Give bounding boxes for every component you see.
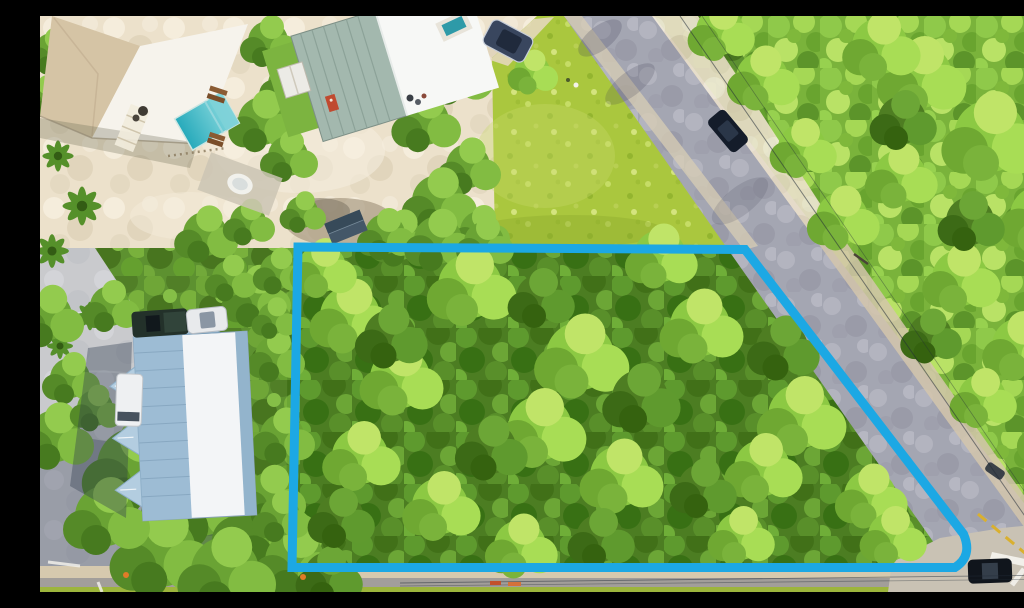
patio-table	[138, 106, 148, 116]
roadside-equipment	[508, 582, 521, 586]
patio-chair	[133, 115, 140, 122]
patio-item	[415, 99, 421, 105]
bucket-on-field	[574, 83, 579, 88]
aerial-photo	[40, 16, 1024, 592]
orange-marker	[300, 574, 306, 580]
aerial-photo-canvas	[40, 16, 1024, 592]
pickup-truck	[131, 308, 189, 338]
grill	[407, 95, 414, 102]
patio-item	[422, 94, 427, 99]
roadside-equipment	[490, 581, 501, 585]
orange-marker	[123, 572, 129, 578]
silver-car	[186, 306, 228, 334]
field-highlight	[475, 104, 615, 208]
white-truck	[115, 374, 143, 427]
field-speck	[566, 78, 570, 82]
